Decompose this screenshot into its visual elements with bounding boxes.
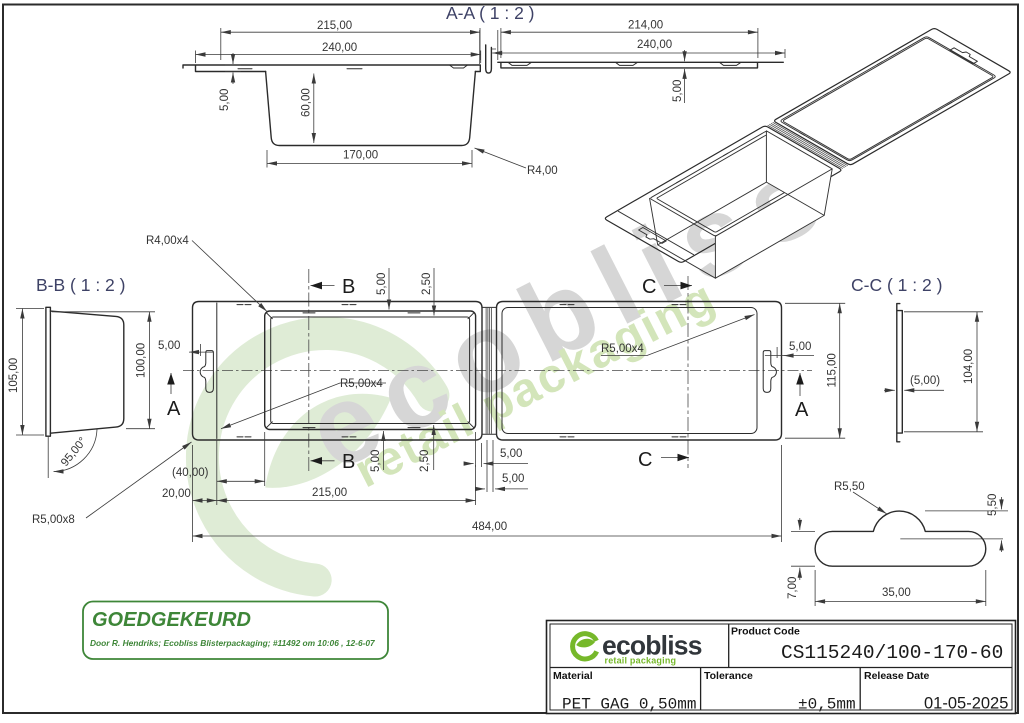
svg-text:5,00: 5,00	[219, 89, 231, 111]
svg-text:2,50: 2,50	[421, 273, 433, 295]
svg-text:104,00: 104,00	[963, 349, 975, 384]
svg-text:B: B	[342, 276, 355, 298]
svg-text:5,00: 5,00	[672, 80, 684, 102]
svg-text:Product Code: Product Code	[731, 626, 800, 638]
svg-text:A: A	[795, 399, 809, 421]
svg-text:B-B ( 1 : 2 ): B-B ( 1 : 2 )	[36, 275, 125, 295]
svg-text:5,00: 5,00	[376, 273, 388, 295]
svg-text:5,00: 5,00	[789, 341, 811, 353]
svg-text:5,00: 5,00	[158, 340, 180, 352]
svg-text:±0,5mm: ±0,5mm	[798, 696, 856, 714]
svg-text:214,00: 214,00	[628, 20, 663, 32]
svg-text:(40,00): (40,00)	[172, 467, 209, 479]
svg-text:A: A	[167, 398, 181, 420]
svg-text:CS115240/100-170-60: CS115240/100-170-60	[781, 642, 1003, 664]
svg-text:5,00: 5,00	[500, 448, 522, 460]
svg-text:Material: Material	[553, 670, 593, 682]
svg-text:R5,00x4: R5,00x4	[601, 343, 644, 355]
svg-text:240,00: 240,00	[322, 42, 357, 54]
svg-text:100,00: 100,00	[136, 343, 148, 378]
svg-text:60,00: 60,00	[301, 88, 313, 117]
svg-text:PET GAG 0,50mm: PET GAG 0,50mm	[562, 696, 696, 714]
svg-text:170,00: 170,00	[343, 150, 378, 162]
svg-text:215,00: 215,00	[317, 20, 352, 32]
svg-text:C-C ( 1 : 2 ): C-C ( 1 : 2 )	[851, 275, 942, 295]
svg-text:5,00: 5,00	[502, 473, 524, 485]
svg-text:GOEDGEKEURD: GOEDGEKEURD	[92, 609, 251, 631]
svg-text:Door R. Hendriks; Ecobliss Bli: Door R. Hendriks; Ecobliss Blisterpackag…	[90, 638, 375, 648]
svg-text:2,50: 2,50	[419, 450, 431, 472]
svg-text:5,00: 5,00	[370, 450, 382, 472]
svg-text:105,00: 105,00	[8, 358, 20, 393]
svg-text:Release Date: Release Date	[864, 670, 930, 682]
svg-text:C: C	[642, 276, 656, 298]
svg-text:B: B	[342, 451, 355, 473]
svg-text:01-05-2025: 01-05-2025	[924, 695, 1008, 713]
svg-text:20,00: 20,00	[162, 488, 191, 500]
svg-text:35,00: 35,00	[882, 587, 911, 599]
svg-text:240,00: 240,00	[637, 39, 672, 51]
svg-text:484,00: 484,00	[472, 521, 507, 533]
svg-text:(5,00): (5,00)	[910, 375, 940, 387]
svg-text:R4,00x4: R4,00x4	[146, 235, 189, 247]
svg-text:115,00: 115,00	[827, 353, 839, 387]
svg-text:R5,00x4: R5,00x4	[340, 378, 383, 390]
svg-text:7,00: 7,00	[787, 577, 799, 599]
svg-text:95,00°: 95,00°	[59, 435, 89, 469]
svg-text:5,50: 5,50	[987, 494, 999, 516]
svg-text:R5,50: R5,50	[834, 481, 865, 493]
svg-text:retail packaging: retail packaging	[605, 656, 677, 666]
svg-text:Tolerance: Tolerance	[704, 670, 753, 682]
svg-text:R5,00x8: R5,00x8	[32, 514, 75, 526]
svg-text:C: C	[638, 449, 652, 471]
svg-text:R4,00: R4,00	[527, 165, 558, 177]
svg-text:215,00: 215,00	[312, 487, 347, 499]
svg-text:A-A ( 1 : 2 ): A-A ( 1 : 2 )	[446, 3, 535, 23]
